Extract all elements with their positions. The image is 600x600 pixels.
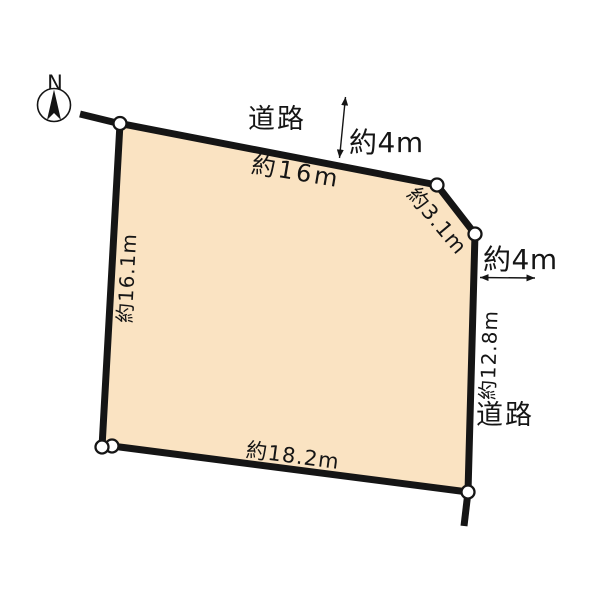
boundary-point-marker: [462, 486, 475, 499]
dim-label-left-edge: 約16.1m: [113, 232, 142, 323]
road-label-top: 道路: [248, 104, 306, 135]
road-label-right: 道路: [476, 400, 534, 431]
dim-label-right-road-width: 約4m: [483, 243, 558, 276]
dim-label-right-edge: 約12.8m: [475, 310, 502, 401]
boundary-point-marker: [96, 441, 109, 454]
north-compass: N: [38, 71, 71, 122]
boundary-point-marker: [114, 117, 127, 130]
plot-diagram-canvas: N 道路 道路 約4m 約4m 約16m 約3.1m 約16.1m 約12.8m…: [0, 0, 600, 600]
road-width-arrow-top: [340, 97, 346, 158]
road-width-arrow-right: [480, 278, 535, 279]
land-plot-diagram: N 道路 道路 約4m 約4m 約16m 約3.1m 約16.1m 約12.8m…: [0, 0, 600, 600]
boundary-point-marker: [469, 228, 482, 241]
dim-label-top-road-width: 約4m: [349, 126, 424, 159]
boundary-point-marker: [431, 179, 444, 192]
